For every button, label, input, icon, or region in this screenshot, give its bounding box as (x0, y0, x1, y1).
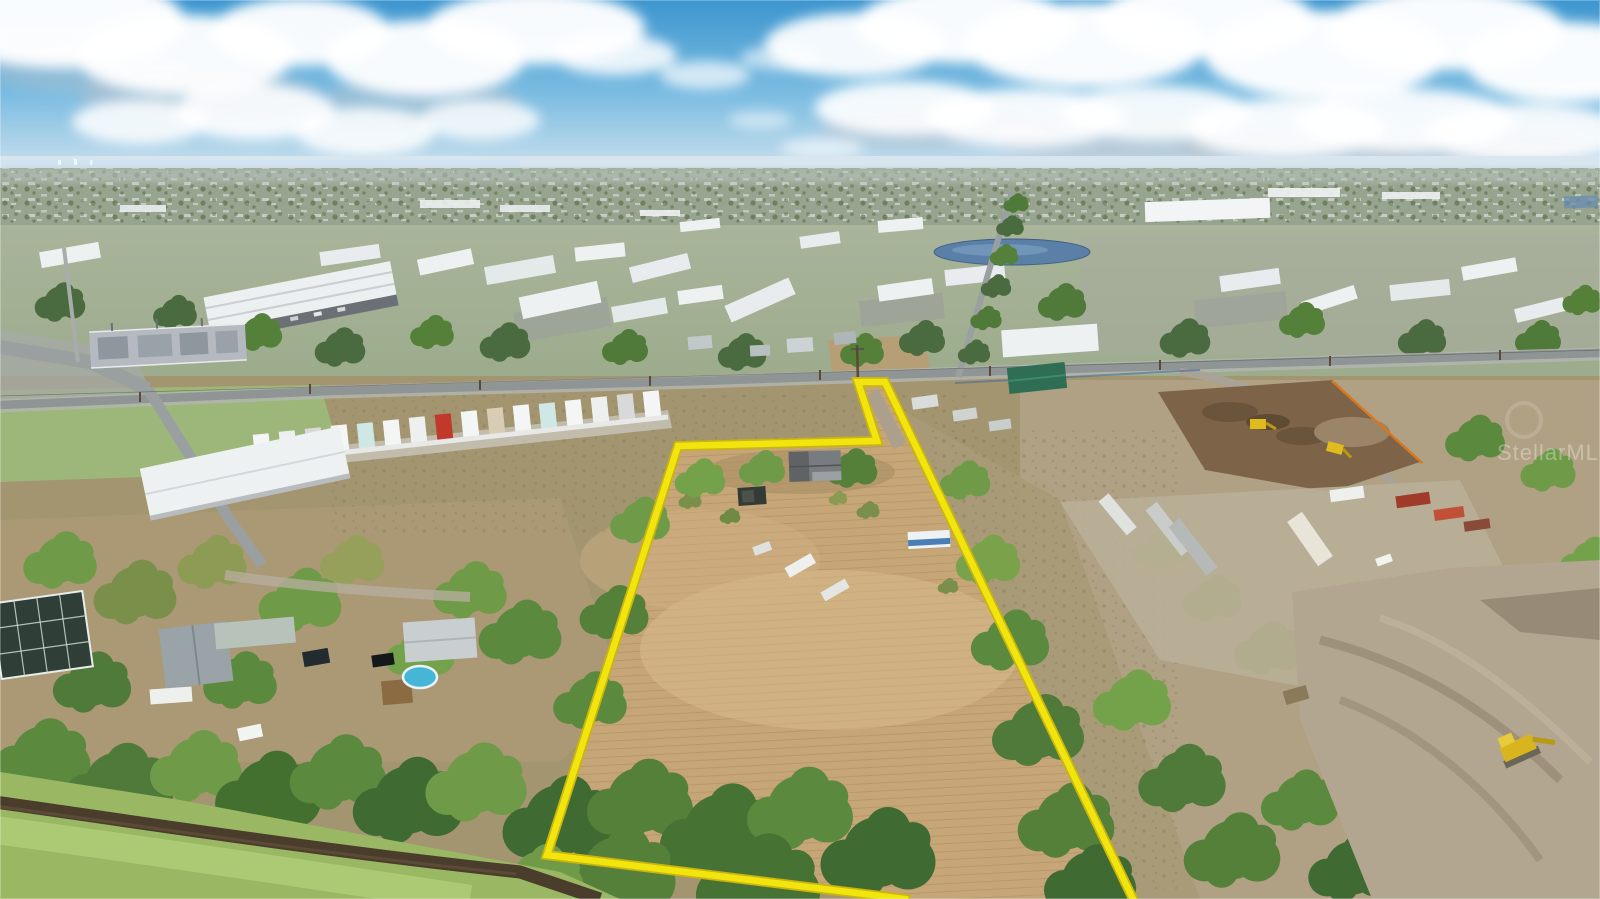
old-farmhouse (788, 450, 841, 482)
pond-right-edge (1564, 195, 1598, 208)
distant-suburbs (0, 168, 1600, 228)
above-ground-pool (403, 666, 437, 688)
screened-pool-enclosure (0, 591, 93, 679)
aerial-photo-canvas: StellarMLS (0, 0, 1600, 899)
dark-truck (737, 486, 766, 506)
camper-rv (908, 530, 951, 549)
watermark-text: StellarMLS (1497, 440, 1600, 465)
aerial-photo: StellarMLS (0, 0, 1600, 899)
carport-shed (403, 618, 478, 663)
